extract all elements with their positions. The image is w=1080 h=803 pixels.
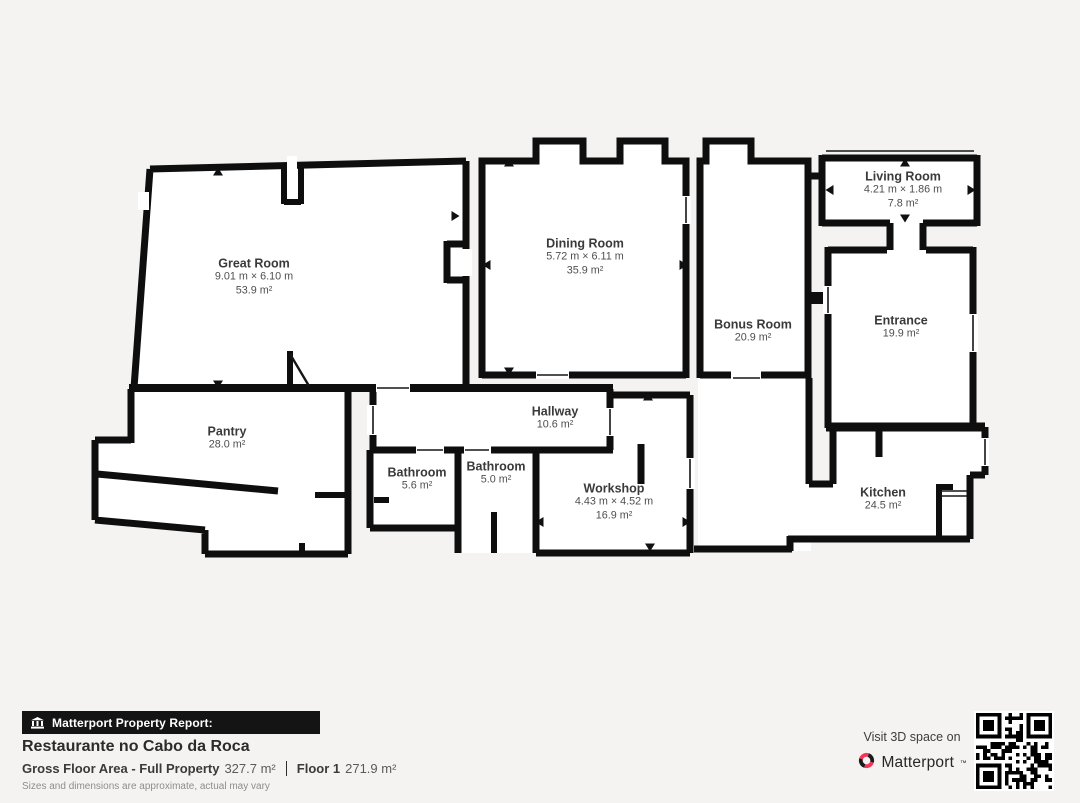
report-badge: Matterport Property Report:: [22, 711, 320, 734]
floor-label: Floor 1: [297, 761, 340, 776]
gross-area-label: Gross Floor Area - Full Property: [22, 761, 219, 776]
building-icon: [31, 717, 44, 729]
qr-code: [974, 711, 1054, 791]
matterport-logo-icon: [857, 751, 876, 775]
floor-area-value: 271.9 m²: [345, 761, 396, 776]
trademark-mark: ™: [960, 760, 967, 767]
matterport-brand: Matterport™: [862, 751, 962, 775]
property-title: Restaurante no Cabo da Roca: [22, 738, 250, 756]
gross-area-value: 327.7 m²: [224, 761, 275, 776]
matterport-wordmark: Matterport: [881, 754, 954, 772]
floor-plan: [0, 0, 1080, 803]
room-fills: [95, 141, 985, 554]
disclaimer-text: Sizes and dimensions are approximate, ac…: [22, 781, 270, 792]
report-badge-label: Matterport Property Report:: [52, 716, 213, 730]
qr-code-canvas: [976, 713, 1052, 789]
visit-3d-cta: Visit 3D space on Matterport™: [862, 730, 962, 775]
visit-text: Visit 3D space on: [862, 730, 962, 744]
floor-area-stats: Gross Floor Area - Full Property 327.7 m…: [22, 761, 396, 776]
stats-divider: [286, 761, 287, 776]
